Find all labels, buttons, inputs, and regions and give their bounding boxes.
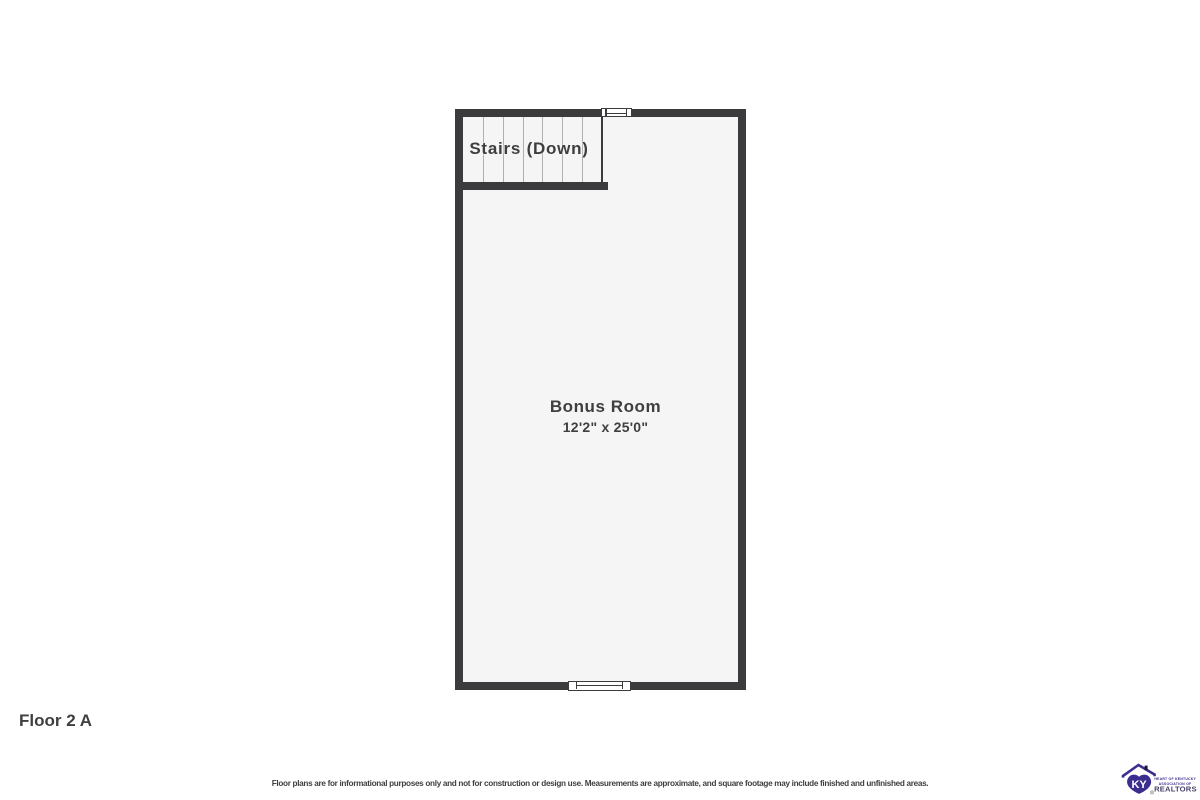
- svg-text:R: R: [1151, 791, 1153, 795]
- svg-text:HEART OF KENTUCKY: HEART OF KENTUCKY: [1154, 777, 1196, 781]
- svg-text:KY: KY: [1131, 779, 1147, 791]
- svg-text:REALTORS: REALTORS: [1154, 785, 1197, 794]
